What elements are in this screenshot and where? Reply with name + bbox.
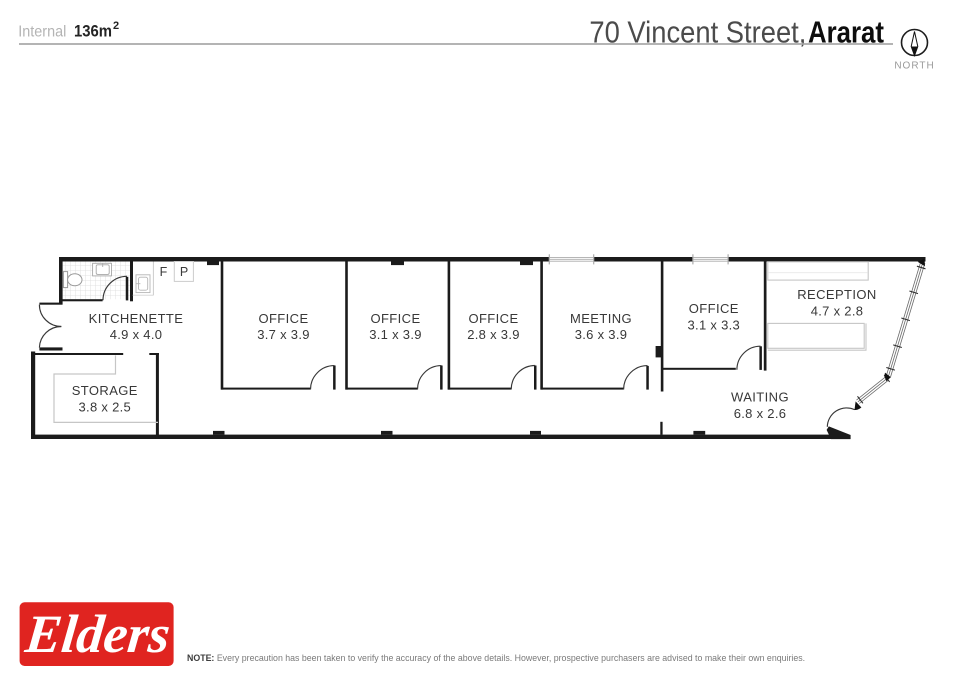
svg-text:Elders: Elders (22, 604, 173, 664)
svg-text:3.6 x 3.9: 3.6 x 3.9 (575, 327, 628, 342)
svg-text:OFFICE: OFFICE (689, 301, 739, 316)
svg-text:Internal: Internal (18, 23, 66, 40)
svg-text:OFFICE: OFFICE (370, 311, 420, 326)
svg-text:F: F (160, 265, 168, 279)
svg-text:P: P (180, 265, 188, 279)
svg-text:WAITING: WAITING (731, 390, 789, 405)
svg-text:4.9 x 4.0: 4.9 x 4.0 (110, 327, 163, 342)
svg-text:4.7 x 2.8: 4.7 x 2.8 (811, 303, 864, 318)
svg-text:2: 2 (113, 20, 119, 32)
svg-text:RECEPTION: RECEPTION (797, 287, 876, 302)
svg-text:NORTH: NORTH (894, 61, 934, 72)
svg-text:STORAGE: STORAGE (72, 383, 138, 398)
svg-text:NOTE: Every precaution has bee: NOTE: Every precaution has been taken to… (187, 653, 805, 663)
svg-text:3.8 x 2.5: 3.8 x 2.5 (79, 400, 132, 415)
svg-text:3.7 x 3.9: 3.7 x 3.9 (257, 327, 310, 342)
svg-text:3.1 x 3.9: 3.1 x 3.9 (369, 327, 422, 342)
svg-text:2.8 x 3.9: 2.8 x 3.9 (467, 327, 520, 342)
svg-text:6.8 x 2.6: 6.8 x 2.6 (734, 406, 787, 421)
svg-text:KITCHENETTE: KITCHENETTE (89, 311, 184, 326)
svg-text:OFFICE: OFFICE (258, 311, 308, 326)
svg-text:3.1 x 3.3: 3.1 x 3.3 (688, 317, 741, 332)
svg-text:136m: 136m (74, 22, 112, 40)
svg-text:OFFICE: OFFICE (468, 311, 518, 326)
svg-text:MEETING: MEETING (570, 311, 632, 326)
